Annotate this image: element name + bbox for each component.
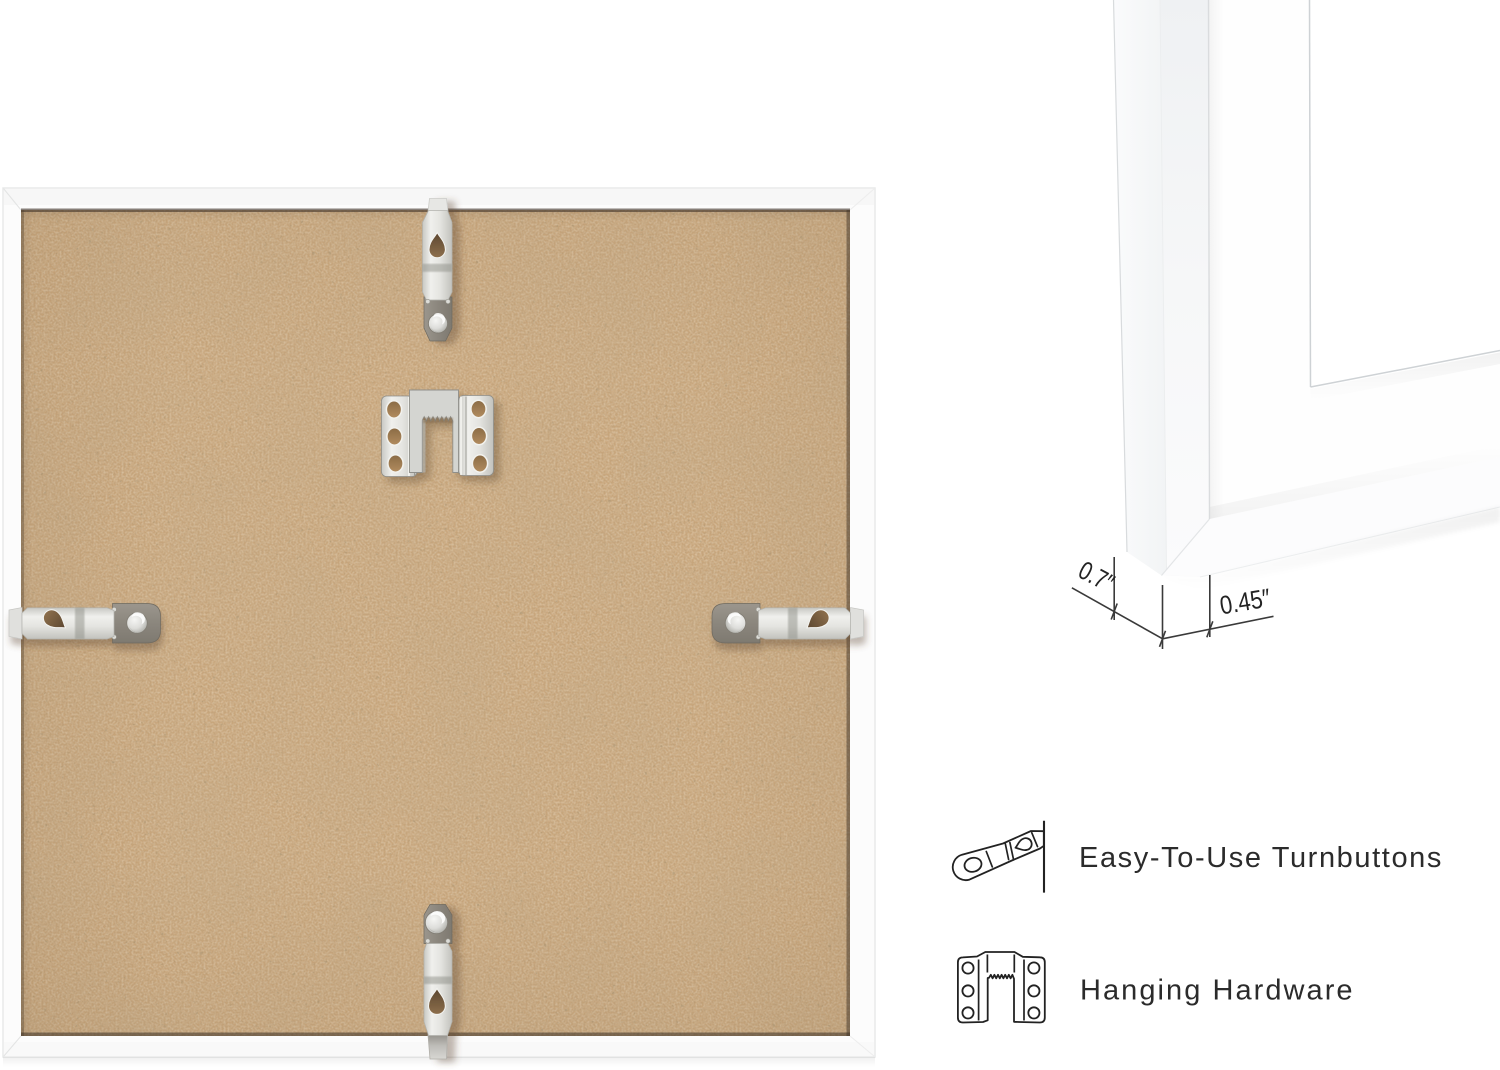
- svg-text:Hanging Hardware: Hanging Hardware: [1080, 975, 1355, 1007]
- svg-text:Easy-To-Use Turnbuttons: Easy-To-Use Turnbuttons: [1079, 842, 1443, 874]
